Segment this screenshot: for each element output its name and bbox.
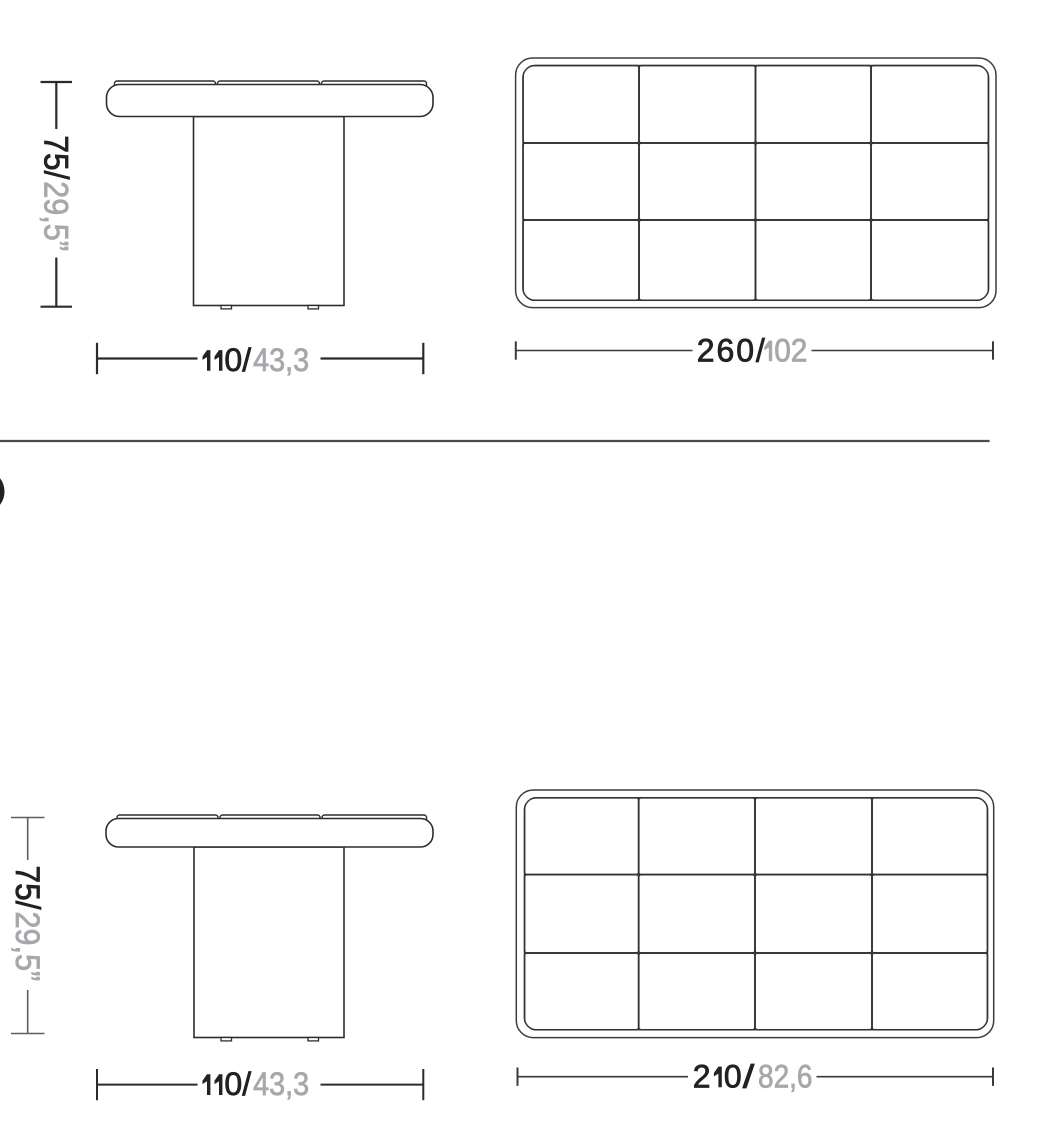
svg-text:260/: 260/	[697, 332, 765, 368]
svg-text:43,3: 43,3	[253, 1066, 309, 1102]
svg-text:2: 2	[693, 1058, 711, 1094]
svg-text:29,5”: 29,5”	[8, 912, 46, 982]
svg-text:0/: 0/	[224, 1066, 251, 1102]
svg-text:43,3: 43,3	[253, 342, 309, 378]
svg-text:75/: 75/	[37, 135, 75, 180]
svg-text:0: 0	[724, 1058, 742, 1094]
svg-text:/: /	[743, 1058, 755, 1094]
svg-text:02: 02	[774, 332, 807, 368]
svg-text:0/: 0/	[224, 342, 251, 378]
svg-text:82,6: 82,6	[758, 1058, 813, 1094]
svg-text:29,5”: 29,5”	[37, 181, 75, 251]
svg-text:75/: 75/	[8, 866, 46, 911]
